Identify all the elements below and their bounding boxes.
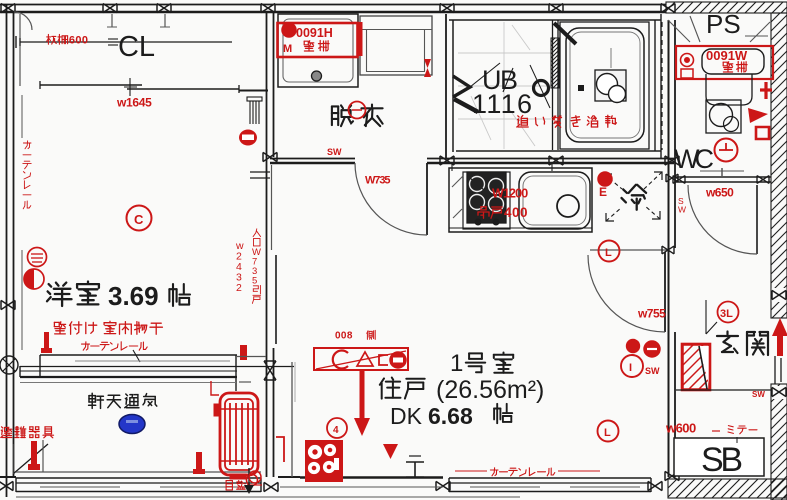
svg-text:L: L (604, 427, 611, 439)
svg-text:3L: 3L (720, 308, 733, 320)
svg-text:0091H: 0091H (296, 26, 333, 40)
svg-text:008: 008 (335, 331, 353, 342)
svg-text:SB: SB (701, 441, 743, 479)
svg-text:DK: DK (390, 403, 423, 429)
svg-text:(26.56m²): (26.56m²) (436, 376, 544, 404)
svg-text:0091W: 0091W (706, 48, 748, 63)
svg-text:w650: w650 (705, 186, 734, 200)
svg-text:400: 400 (504, 205, 528, 220)
svg-text:4: 4 (333, 425, 339, 436)
svg-text:L: L (605, 247, 612, 259)
svg-text:CL: CL (118, 31, 155, 63)
svg-text:3.69: 3.69 (108, 281, 159, 311)
svg-text:SW: SW (327, 147, 342, 157)
svg-text:w600: w600 (665, 421, 696, 436)
svg-text:SW: SW (645, 366, 660, 376)
svg-text:W735: W735 (365, 175, 391, 187)
svg-text:w755: w755 (637, 307, 666, 321)
svg-text:WC: WC (674, 144, 714, 174)
svg-text:1: 1 (450, 350, 463, 377)
svg-text:w1645: w1645 (116, 96, 152, 110)
svg-text:5: 5 (252, 276, 257, 287)
svg-text:C: C (134, 212, 144, 227)
svg-text:2: 2 (236, 282, 242, 294)
svg-text:600: 600 (69, 35, 88, 47)
svg-text:SW: SW (752, 390, 765, 399)
svg-text:1116: 1116 (472, 89, 532, 119)
svg-text:I: I (629, 362, 632, 374)
svg-text:E: E (599, 185, 607, 199)
svg-text:W1200: W1200 (492, 187, 528, 201)
svg-text:6.68: 6.68 (428, 403, 473, 429)
svg-text:PS: PS (706, 9, 741, 39)
svg-text:M: M (283, 43, 292, 55)
svg-text:W: W (678, 205, 686, 215)
